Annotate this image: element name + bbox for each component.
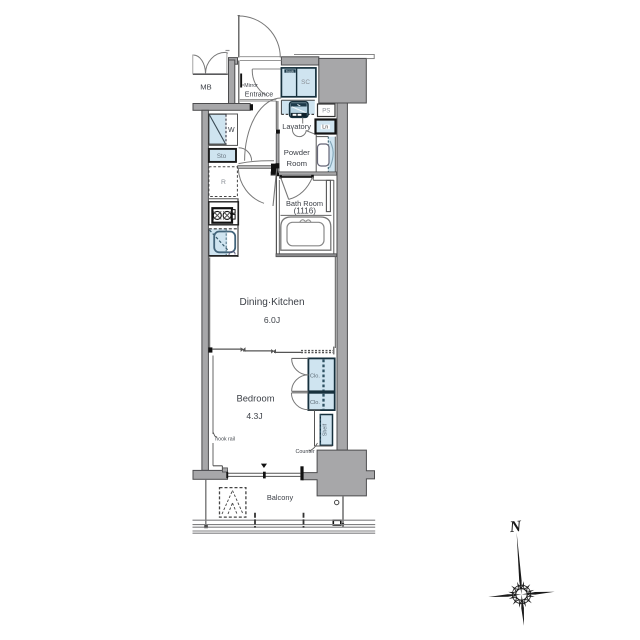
svg-text:Clo.: Clo. bbox=[310, 400, 320, 406]
svg-text:Lavatory: Lavatory bbox=[282, 122, 311, 131]
svg-text:Bedroom: Bedroom bbox=[236, 393, 274, 404]
svg-text:PS: PS bbox=[322, 109, 330, 115]
svg-text:Balcony: Balcony bbox=[267, 493, 294, 502]
svg-text:4.3J: 4.3J bbox=[246, 411, 262, 421]
svg-text:Powder: Powder bbox=[284, 148, 311, 157]
svg-text:Clo.: Clo. bbox=[310, 373, 320, 379]
svg-text:Ln: Ln bbox=[322, 125, 328, 131]
svg-text:MB: MB bbox=[200, 83, 211, 92]
svg-text:Room: Room bbox=[287, 159, 308, 168]
svg-text:Dining·Kitchen: Dining·Kitchen bbox=[239, 297, 304, 308]
svg-text:(1116): (1116) bbox=[294, 207, 317, 216]
svg-text:W: W bbox=[228, 127, 235, 134]
svg-text:SC: SC bbox=[301, 79, 310, 86]
svg-text:R: R bbox=[221, 179, 226, 186]
svg-text:N: N bbox=[508, 518, 524, 536]
svg-text:Shelf: Shelf bbox=[323, 423, 329, 436]
svg-text:Mirror: Mirror bbox=[244, 83, 258, 89]
svg-text:6.0J: 6.0J bbox=[264, 315, 280, 325]
svg-text:Sto: Sto bbox=[217, 153, 227, 160]
svg-text:hook rail: hook rail bbox=[215, 436, 235, 442]
svg-text:Entrance: Entrance bbox=[245, 90, 273, 98]
svg-text:Counter: Counter bbox=[296, 449, 315, 455]
svg-text:hook: hook bbox=[286, 69, 294, 73]
